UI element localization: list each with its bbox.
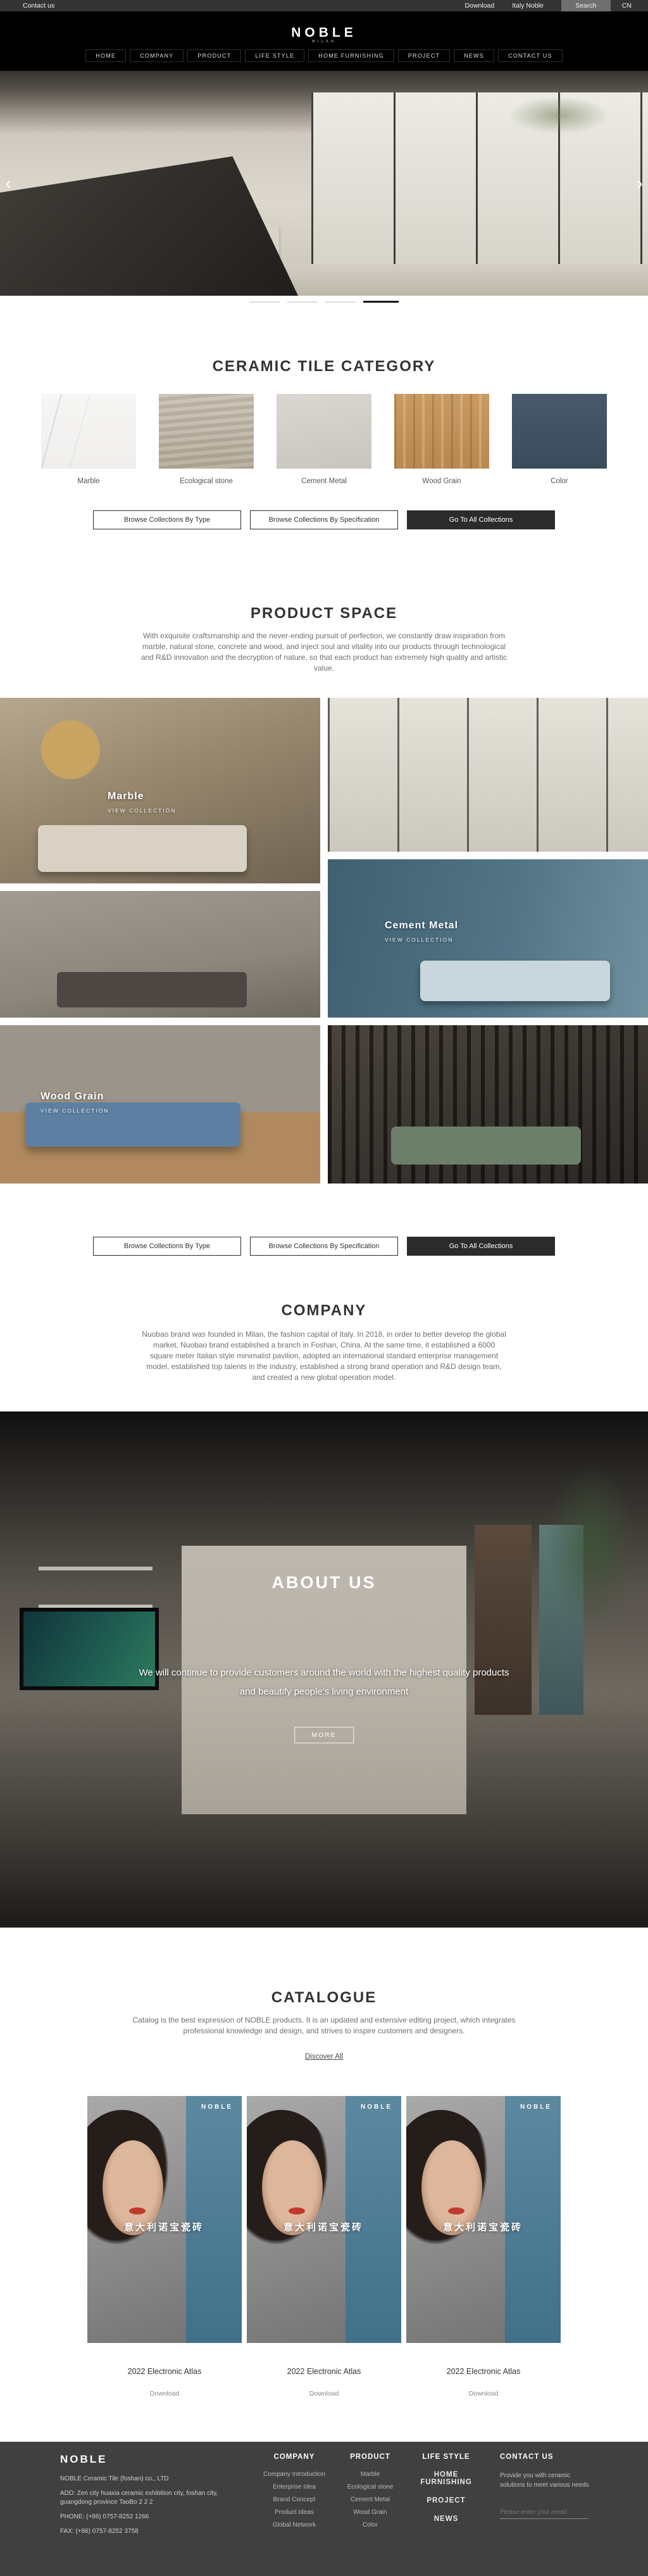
sofa-shape bbox=[38, 825, 247, 872]
space-tile-wood-grain[interactable]: Wood Grain VIEW COLLECTION bbox=[0, 1025, 320, 1184]
catalogue-cover[interactable]: NOBLE 意大利诺宝瓷砖 bbox=[406, 2096, 561, 2343]
logo-wordmark: NOBLE bbox=[0, 27, 648, 39]
utility-right-group: Download Italy Noble Search CN bbox=[465, 0, 634, 11]
cover-brand: NOBLE bbox=[201, 2104, 233, 2111]
language-toggle[interactable]: CN bbox=[622, 2, 634, 9]
showroom-shelf bbox=[39, 1567, 153, 1570]
category-ecological-stone[interactable]: Ecological stone bbox=[159, 394, 254, 486]
footer-link[interactable]: Brand Concept bbox=[253, 2496, 335, 2503]
footer-link[interactable]: Product Ideas bbox=[253, 2509, 335, 2516]
utility-bar: Contact us Download Italy Noble Search C… bbox=[0, 0, 648, 11]
footer-link-news[interactable]: NEWS bbox=[408, 2515, 484, 2523]
atlas-title: 2022 Electronic Atlas bbox=[406, 2367, 561, 2376]
grid-right-column: Cement Metal VIEW COLLECTION bbox=[328, 698, 648, 1184]
cover-blue-panel bbox=[186, 2096, 242, 2343]
slider-pagination bbox=[0, 301, 648, 303]
catalogue-title: CATALOGUE bbox=[0, 1988, 648, 2007]
company-section: COMPANY Nuobao brand was founded in Mila… bbox=[0, 1301, 648, 1383]
footer-link-project[interactable]: PROJECT bbox=[408, 2497, 484, 2504]
footer-column-product: PRODUCT Marble Ecological stone Cement M… bbox=[335, 2453, 405, 2534]
footer-fax: FAX: (+86) 0757-8252 3758 bbox=[60, 2527, 225, 2536]
slider-bar-2[interactable] bbox=[287, 301, 318, 303]
catalogue-covers: NOBLE 意大利诺宝瓷砖 NOBLE 意大利诺宝瓷砖 NOBLE 意大利诺宝瓷… bbox=[0, 2096, 648, 2343]
footer-link[interactable]: Company Introduction bbox=[253, 2471, 335, 2478]
browse-by-type-button[interactable]: Browse Collections By Type bbox=[93, 1237, 241, 1256]
about-us-title: ABOUT US bbox=[0, 1573, 648, 1593]
site-header: NOBLE MILAN HOME COMPANY PRODUCT LIFE ST… bbox=[0, 11, 648, 71]
nav-company[interactable]: COMPANY bbox=[130, 49, 184, 62]
color-swatch-image bbox=[512, 394, 607, 469]
footer-link[interactable]: Color bbox=[335, 2522, 405, 2529]
footer-link[interactable]: Enterprise Idea bbox=[253, 2484, 335, 2491]
hero-greenery bbox=[508, 96, 609, 134]
nav-home-furnishing[interactable]: HOME FURNISHING bbox=[308, 49, 394, 62]
category-label: Wood Grain bbox=[394, 476, 489, 486]
space-tile-cement-metal[interactable]: Cement Metal VIEW COLLECTION bbox=[328, 859, 648, 1018]
footer-company-name: NOBLE Ceramic Tile (foshan) co., LTD bbox=[60, 2475, 225, 2484]
cover-blue-panel bbox=[346, 2096, 401, 2343]
email-input[interactable] bbox=[500, 2506, 589, 2519]
category-label: Ecological stone bbox=[159, 476, 254, 486]
browse-by-type-button[interactable]: Browse Collections By Type bbox=[93, 510, 241, 529]
tile-overlay: Wood Grain VIEW COLLECTION bbox=[40, 1091, 109, 1114]
footer-company-info: NOBLE Ceramic Tile (foshan) co., LTD ADD… bbox=[60, 2475, 225, 2542]
tile-overlay: Marble VIEW COLLECTION bbox=[108, 791, 176, 814]
catalogue-description: Catalog is the best expression of NOBLE … bbox=[128, 2015, 520, 2036]
atlas-download-link[interactable]: Download bbox=[406, 2390, 561, 2397]
footer-link[interactable]: Ecological stone bbox=[335, 2484, 405, 2491]
browse-by-specification-button[interactable]: Browse Collections By Specification bbox=[250, 510, 398, 529]
footer-link-home-furnishing[interactable]: HOME FURNISHING bbox=[408, 2471, 484, 2486]
about-more-button[interactable]: MORE bbox=[294, 1727, 354, 1743]
cover-blue-panel bbox=[505, 2096, 561, 2343]
cover-portrait-lips bbox=[129, 2207, 146, 2214]
sofa-shape bbox=[420, 961, 610, 1001]
category-label: Cement Metal bbox=[277, 476, 371, 486]
product-space-title: PRODUCT SPACE bbox=[0, 604, 648, 623]
ecological-stone-swatch-image bbox=[159, 394, 254, 469]
about-tagline-line2: and beautify people's living environment bbox=[0, 1683, 648, 1702]
atlas-download-link[interactable]: Download bbox=[87, 2390, 242, 2397]
cover-portrait-lips bbox=[289, 2207, 305, 2214]
product-space-description: With exquisite craftsmanship and the nev… bbox=[140, 631, 508, 674]
search-button[interactable]: Search bbox=[561, 0, 611, 11]
italy-noble-link[interactable]: Italy Noble bbox=[512, 2, 544, 9]
footer-link[interactable]: Global Network bbox=[253, 2522, 335, 2529]
space-tile-bright-dining[interactable] bbox=[328, 698, 648, 852]
footer-logo: NOBLE bbox=[60, 2453, 108, 2466]
cover-brand: NOBLE bbox=[520, 2104, 552, 2111]
category-cement-metal[interactable]: Cement Metal bbox=[277, 394, 371, 486]
catalogue-cover[interactable]: NOBLE 意大利诺宝瓷砖 bbox=[247, 2096, 401, 2343]
catalogue-captions: 2022 Electronic Atlas 2022 Electronic At… bbox=[0, 2367, 648, 2376]
footer-link[interactable]: Cement Metal bbox=[335, 2496, 405, 2503]
space-tile-dark-slat-wall[interactable] bbox=[328, 1025, 648, 1184]
contact-us-link[interactable]: Contact us bbox=[23, 2, 54, 9]
tile-name: Wood Grain bbox=[40, 1091, 109, 1102]
go-to-all-collections-button[interactable]: Go To All Collections bbox=[407, 1237, 555, 1256]
cover-brand: NOBLE bbox=[361, 2104, 392, 2111]
tile-overlay: Cement Metal VIEW COLLECTION bbox=[385, 920, 458, 943]
atlas-download-link[interactable]: Download bbox=[247, 2390, 401, 2397]
nav-news[interactable]: NEWS bbox=[454, 49, 494, 62]
discover-all-link[interactable]: Discover All bbox=[0, 2053, 648, 2061]
space-tile-marble[interactable]: Marble VIEW COLLECTION bbox=[0, 698, 320, 883]
product-space-grid: Marble VIEW COLLECTION Wood Grain VIEW C… bbox=[0, 698, 648, 1184]
footer-column-heading: COMPANY bbox=[253, 2453, 335, 2461]
company-description: Nuobao brand was founded in Milan, the f… bbox=[140, 1329, 508, 1383]
nav-contact-us[interactable]: CONTACT US bbox=[498, 49, 563, 62]
about-tagline-line1: We will continue to provide customers ar… bbox=[0, 1664, 648, 1683]
space-tile-gray-living-room[interactable] bbox=[0, 891, 320, 1018]
catalogue-section: CATALOGUE Catalog is the best expression… bbox=[0, 1988, 648, 2397]
nav-life-style[interactable]: LIFE STYLE bbox=[245, 49, 304, 62]
marble-swatch-image bbox=[41, 394, 136, 469]
category-swatches: Marble Ecological stone Cement Metal Woo… bbox=[0, 394, 648, 486]
wood-grain-swatch-image bbox=[394, 394, 489, 469]
view-collection-link[interactable]: VIEW COLLECTION bbox=[108, 807, 176, 814]
site-footer: NOBLE NOBLE Ceramic Tile (foshan) co., L… bbox=[0, 2442, 648, 2576]
about-us-banner: ABOUT US We will continue to provide cus… bbox=[0, 1411, 648, 1928]
slider-bar-4-active[interactable] bbox=[363, 301, 399, 303]
view-collection-link[interactable]: VIEW COLLECTION bbox=[40, 1108, 109, 1114]
footer-contact-text: Provide you with ceramic solutions to me… bbox=[500, 2471, 595, 2490]
footer-column-life-style: LIFE STYLE HOME FURNISHING PROJECT NEWS bbox=[408, 2453, 484, 2534]
about-us-tagline: We will continue to provide customers ar… bbox=[0, 1664, 648, 1702]
footer-column-heading: PRODUCT bbox=[335, 2453, 405, 2461]
go-to-all-collections-button[interactable]: Go To All Collections bbox=[407, 510, 555, 529]
main-nav: HOME COMPANY PRODUCT LIFE STYLE HOME FUR… bbox=[0, 49, 648, 62]
atlas-title: 2022 Electronic Atlas bbox=[247, 2367, 401, 2376]
footer-column-heading: CONTACT US bbox=[500, 2453, 595, 2461]
sofa-shape bbox=[57, 972, 247, 1007]
company-title: COMPANY bbox=[0, 1301, 648, 1320]
hero-slider: ‹ › bbox=[0, 71, 648, 296]
slider-next-arrow-icon[interactable]: › bbox=[637, 174, 643, 193]
product-space-section: PRODUCT SPACE With exquisite craftsmansh… bbox=[0, 604, 648, 1256]
footer-link[interactable]: Marble bbox=[335, 2471, 405, 2478]
cover-chinese-title: 意大利诺宝瓷砖 bbox=[283, 2220, 391, 2233]
showroom-plant bbox=[547, 1463, 635, 1628]
category-marble[interactable]: Marble bbox=[41, 394, 136, 486]
category-wood-grain[interactable]: Wood Grain bbox=[394, 394, 489, 486]
footer-address: ADD: Zen city huaxia ceramic exhibition … bbox=[60, 2489, 225, 2507]
cover-portrait-lips bbox=[448, 2207, 464, 2214]
nav-home[interactable]: HOME bbox=[85, 49, 126, 62]
category-label: Color bbox=[512, 476, 607, 486]
cover-chinese-title: 意大利诺宝瓷砖 bbox=[124, 2220, 232, 2233]
cover-chinese-title: 意大利诺宝瓷砖 bbox=[443, 2220, 551, 2233]
grid-left-column: Marble VIEW COLLECTION Wood Grain VIEW C… bbox=[0, 698, 320, 1184]
category-buttons: Browse Collections By Type Browse Collec… bbox=[0, 510, 648, 529]
catalogue-downloads: Download Download Download bbox=[0, 2390, 648, 2397]
search-button-label: Search bbox=[575, 2, 596, 9]
footer-link[interactable]: Wood Grain bbox=[335, 2509, 405, 2516]
atlas-title: 2022 Electronic Atlas bbox=[87, 2367, 242, 2376]
nav-product[interactable]: PRODUCT bbox=[187, 49, 241, 62]
slider-prev-arrow-icon[interactable]: ‹ bbox=[5, 174, 11, 193]
footer-column-contact: CONTACT US Provide you with ceramic solu… bbox=[500, 2453, 595, 2519]
category-label: Marble bbox=[41, 476, 136, 486]
slider-bar-3[interactable] bbox=[325, 301, 356, 303]
tile-name: Cement Metal bbox=[385, 920, 458, 931]
browse-by-specification-button[interactable]: Browse Collections By Specification bbox=[250, 1237, 398, 1256]
category-title: CERAMIC TILE CATEGORY bbox=[0, 357, 648, 376]
view-collection-link[interactable]: VIEW COLLECTION bbox=[385, 937, 458, 943]
category-section: CERAMIC TILE CATEGORY Marble Ecological … bbox=[0, 357, 648, 529]
catalogue-cover[interactable]: NOBLE 意大利诺宝瓷砖 bbox=[87, 2096, 242, 2343]
slider-bar-1[interactable] bbox=[249, 301, 280, 303]
download-link[interactable]: Download bbox=[465, 2, 495, 9]
product-space-buttons: Browse Collections By Type Browse Collec… bbox=[0, 1237, 648, 1256]
nav-project[interactable]: PROJECT bbox=[398, 49, 450, 62]
footer-column-heading: LIFE STYLE bbox=[408, 2453, 484, 2461]
footer-phone: PHONE: (+86) 0757-8252 1266 bbox=[60, 2513, 225, 2522]
logo-subtitle: MILAN bbox=[0, 39, 648, 44]
tile-name: Marble bbox=[108, 791, 176, 802]
sofa-shape bbox=[391, 1127, 581, 1165]
cement-metal-swatch-image bbox=[277, 394, 371, 469]
category-color[interactable]: Color bbox=[512, 394, 607, 486]
logo[interactable]: NOBLE MILAN bbox=[0, 11, 648, 44]
footer-column-company: COMPANY Company Introduction Enterprise … bbox=[253, 2453, 335, 2534]
hero-stone-island bbox=[0, 156, 298, 296]
